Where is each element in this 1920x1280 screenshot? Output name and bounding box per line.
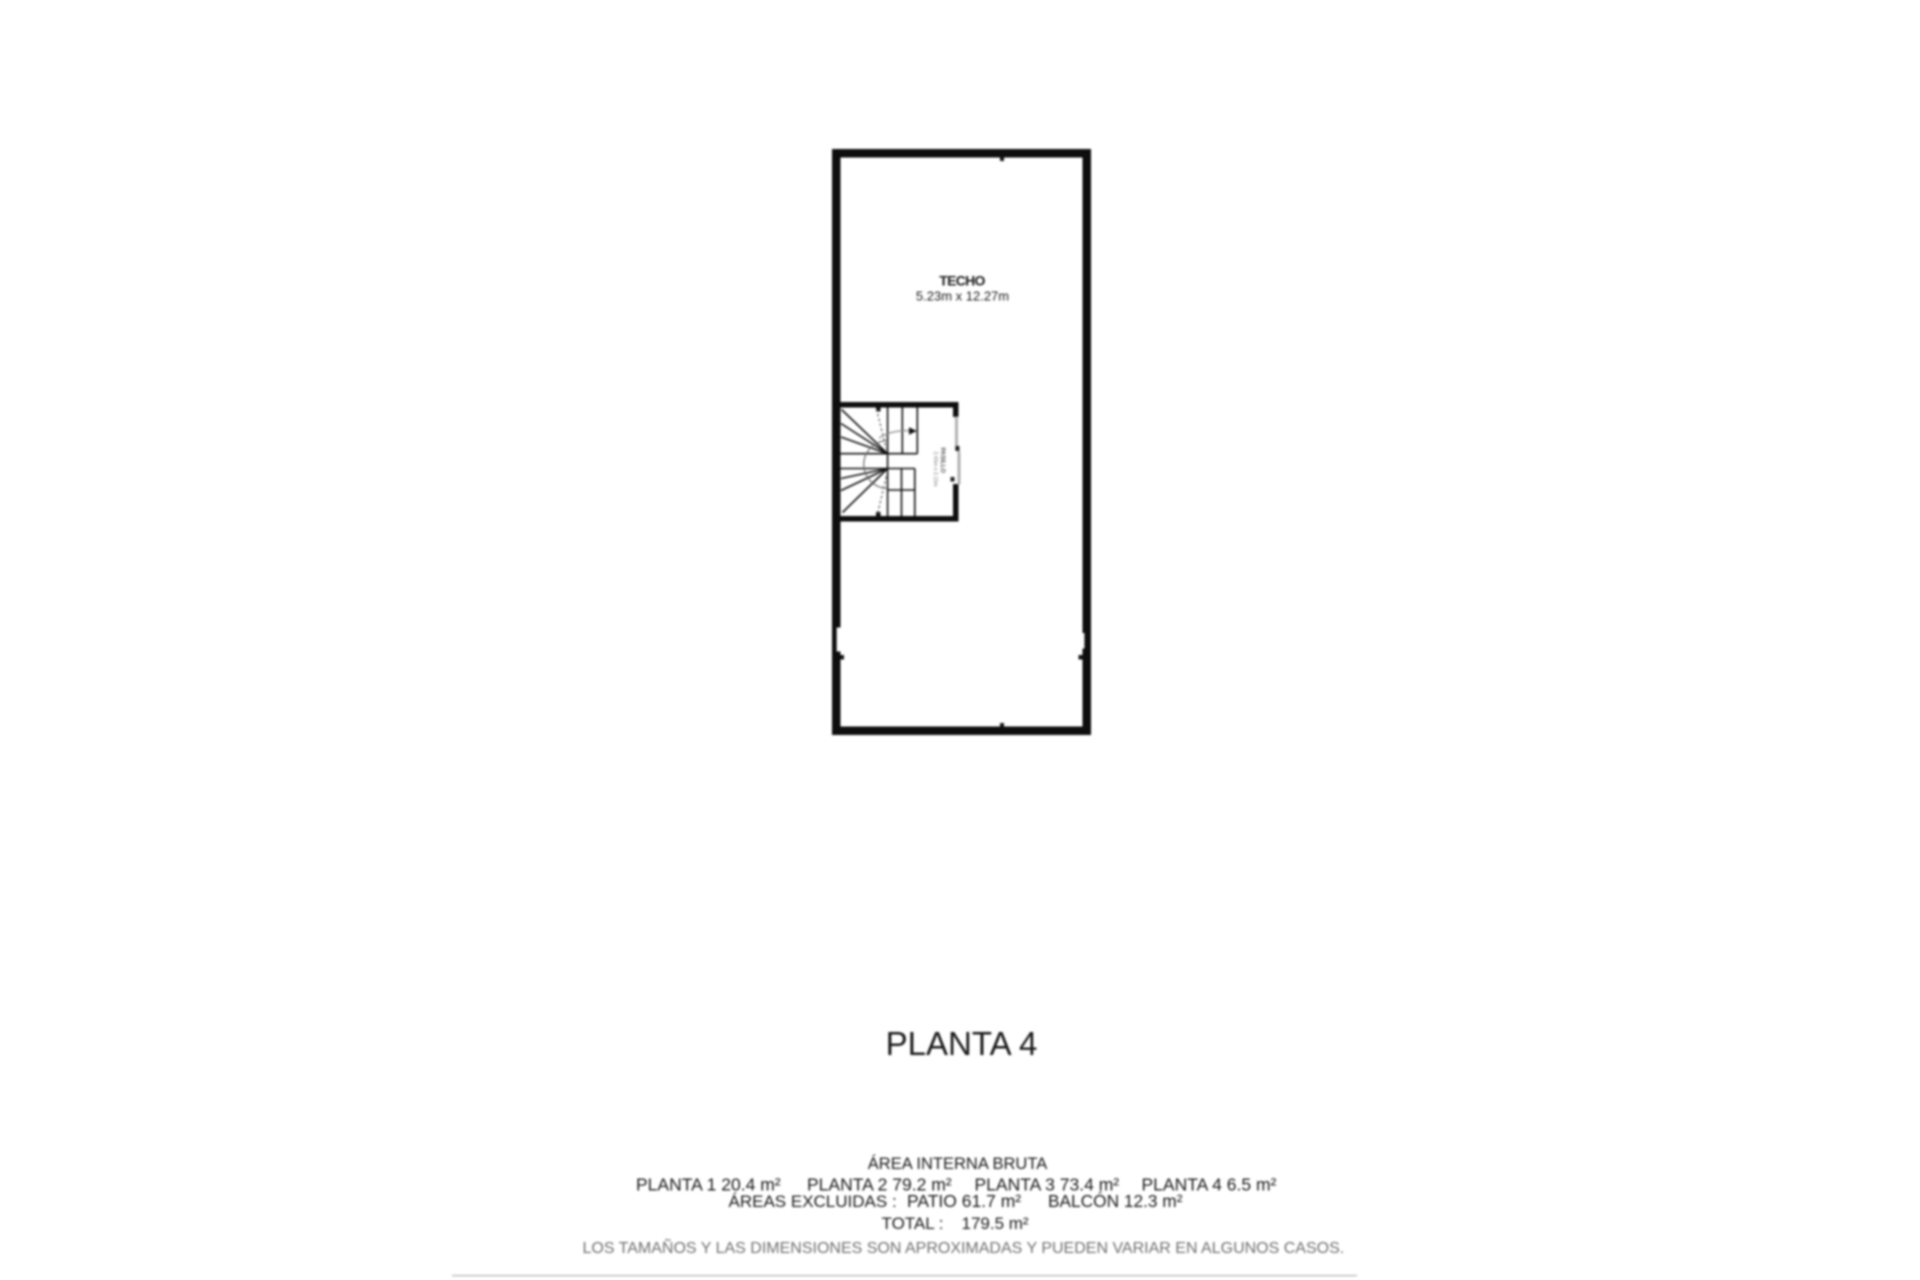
- svg-text:PLANTA 4: PLANTA 4: [886, 1025, 1038, 1062]
- svg-text:5.23m x 12.27m: 5.23m x 12.27m: [916, 289, 1009, 304]
- svg-text:LOS TAMAÑOS Y LAS DIMENSIONES: LOS TAMAÑOS Y LAS DIMENSIONES SON APROXI…: [583, 1237, 1345, 1257]
- svg-text:BALCÓN 12.3 m²: BALCÓN 12.3 m²: [1048, 1191, 1183, 1211]
- svg-text:2.45m x 2.15m: 2.45m x 2.15m: [932, 452, 938, 488]
- svg-text:TECHO: TECHO: [939, 273, 985, 289]
- svg-text:ÁREA INTERNA BRUTA: ÁREA INTERNA BRUTA: [868, 1154, 1047, 1173]
- svg-text:TOTAL :: TOTAL :: [882, 1214, 944, 1233]
- svg-text:PATIO 61.7 m²: PATIO 61.7 m²: [907, 1191, 1021, 1211]
- svg-text:ÁREAS EXCLUIDAS :: ÁREAS EXCLUIDAS :: [729, 1192, 897, 1211]
- svg-text:PASILLO: PASILLO: [939, 448, 945, 474]
- svg-text:179.5 m²: 179.5 m²: [962, 1214, 1029, 1233]
